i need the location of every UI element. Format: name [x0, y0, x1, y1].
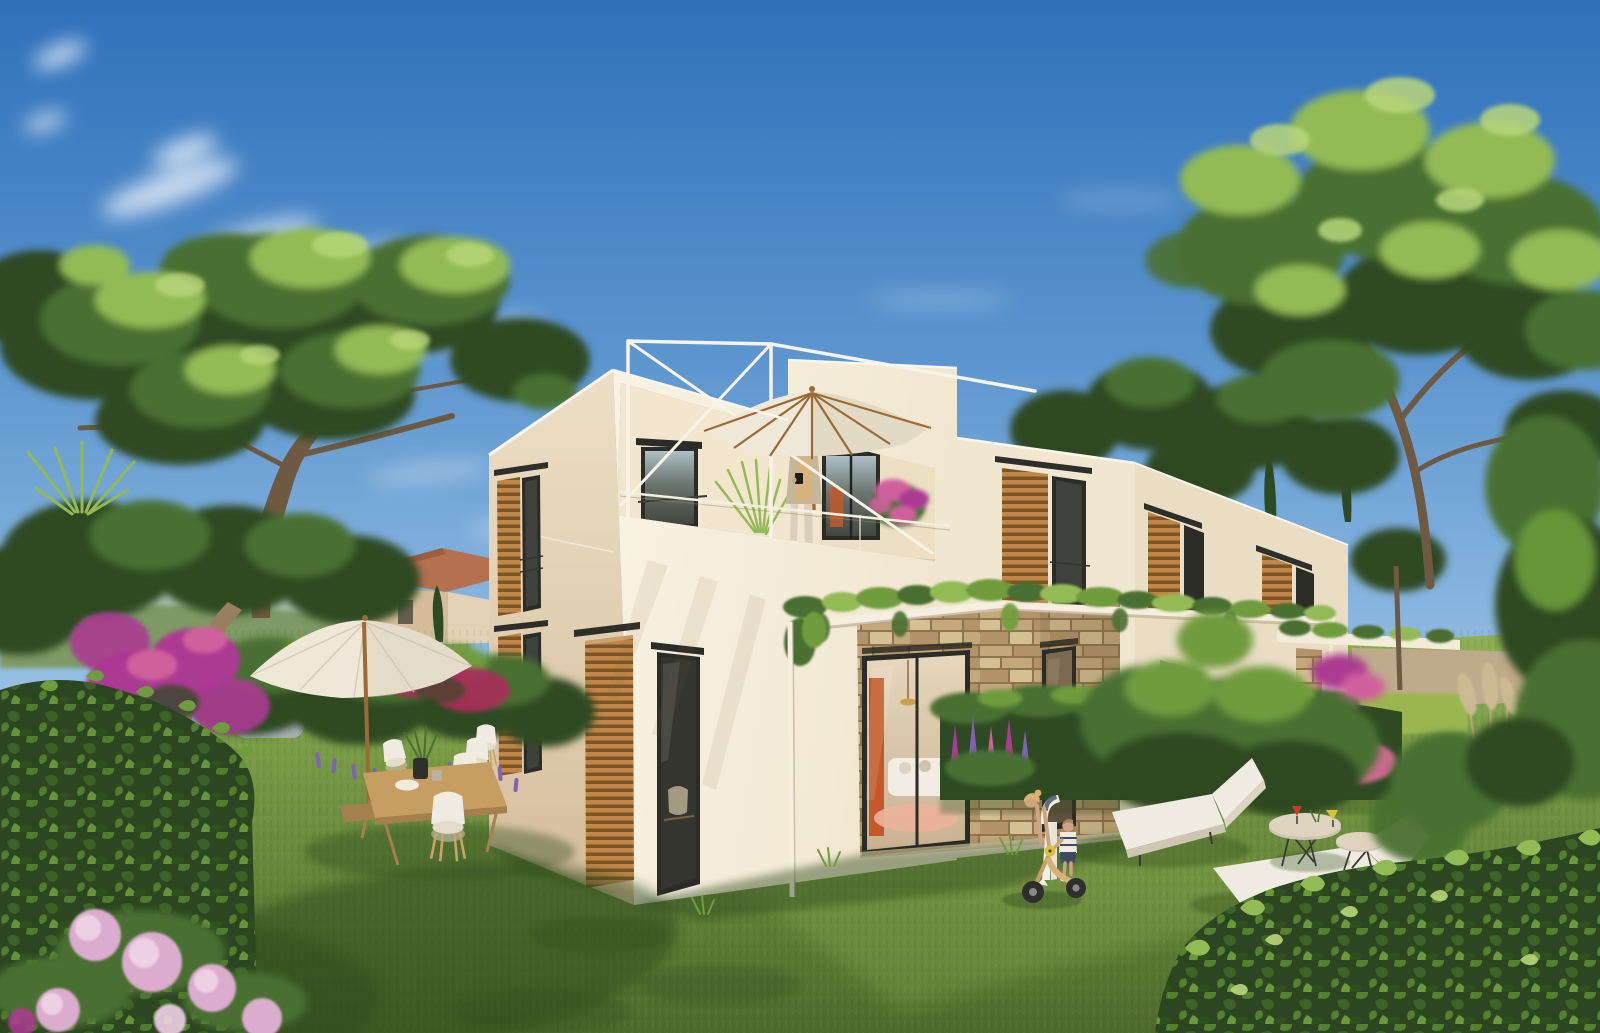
- render-canvas: [0, 0, 1600, 1033]
- terrace-door: [818, 444, 884, 540]
- villa-garden-scene: [0, 0, 1600, 1033]
